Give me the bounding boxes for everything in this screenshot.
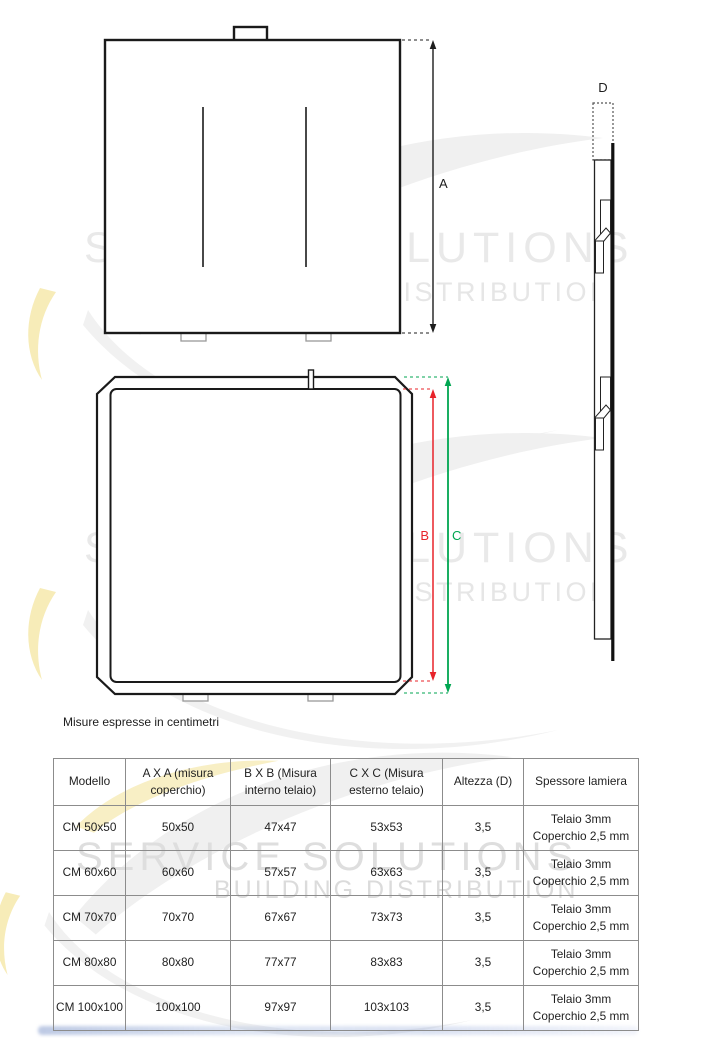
header-cell-cxc: C X C (Misura esterno telaio) <box>331 759 443 806</box>
header-cell-bxb: B X B (Misura interno telaio) <box>231 759 331 806</box>
arrowhead-down <box>430 672 437 681</box>
cover-bottom-tab <box>181 333 206 341</box>
table-cell: 103x103 <box>331 986 443 1031</box>
frame-inner-outline <box>111 389 401 682</box>
table-cell: 60x60 <box>126 851 231 896</box>
table-row: CM 100x100 100x100 97x97 103x103 3,5 Tel… <box>54 986 639 1031</box>
table-row: CM 70x70 70x70 67x67 73x73 3,5 Telaio 3m… <box>54 896 639 941</box>
table-cell: 77x77 <box>231 941 331 986</box>
table-cell: 3,5 <box>443 986 524 1031</box>
table-cell: Telaio 3mm Coperchio 2,5 mm <box>524 851 639 896</box>
cover-bottom-tab <box>306 333 331 341</box>
dimension-b-label: B <box>420 528 429 543</box>
hinge-bracket <box>596 418 604 450</box>
table-cell: CM 100x100 <box>54 986 126 1031</box>
table-cell: 73x73 <box>331 896 443 941</box>
table-row: CM 60x60 60x60 57x57 63x63 3,5 Telaio 3m… <box>54 851 639 896</box>
table-row: CM 80x80 80x80 77x77 83x83 3,5 Telaio 3m… <box>54 941 639 986</box>
table-cell: 47x47 <box>231 806 331 851</box>
header-cell-modello: Modello <box>54 759 126 806</box>
table-cell: 57x57 <box>231 851 331 896</box>
table-cell: 100x100 <box>126 986 231 1031</box>
table-cell: 70x70 <box>126 896 231 941</box>
frame-hinge-pin <box>309 370 314 389</box>
arrowhead-down <box>445 684 452 693</box>
units-note: Misure espresse in centimetri <box>63 715 219 729</box>
hinge-bracket <box>596 241 604 273</box>
table-cell: 83x83 <box>331 941 443 986</box>
dimension-a: A <box>402 40 448 333</box>
table-cell: 3,5 <box>443 851 524 896</box>
table-cell: 3,5 <box>443 941 524 986</box>
dimension-c-label: C <box>452 528 461 543</box>
spec-table: Modello A X A (misura coperchio) B X B (… <box>53 758 639 1031</box>
arrowhead-up <box>430 389 437 398</box>
header-cell-altezza: Altezza (D) <box>443 759 524 806</box>
table-cell: 50x50 <box>126 806 231 851</box>
profile-dashed-extension <box>593 103 613 160</box>
table-cell: 3,5 <box>443 806 524 851</box>
arrowhead-up <box>445 377 452 386</box>
table-cell: CM 60x60 <box>54 851 126 896</box>
table-cell: 80x80 <box>126 941 231 986</box>
arrowhead-up <box>430 40 437 49</box>
cover-top-view <box>105 27 400 341</box>
dimension-a-label: A <box>439 176 448 191</box>
table-cell: Telaio 3mm Coperchio 2,5 mm <box>524 896 639 941</box>
technical-drawings: A B C D <box>0 0 720 740</box>
table-cell: CM 50x50 <box>54 806 126 851</box>
table-cell: Telaio 3mm Coperchio 2,5 mm <box>524 986 639 1031</box>
table-cell: 53x53 <box>331 806 443 851</box>
arrowhead-down <box>430 324 437 333</box>
cover-outline <box>105 40 400 333</box>
table-cell: 3,5 <box>443 896 524 941</box>
table-cell: 67x67 <box>231 896 331 941</box>
table-cell: 97x97 <box>231 986 331 1031</box>
table-header-row: Modello A X A (misura coperchio) B X B (… <box>54 759 639 806</box>
table-cell: 63x63 <box>331 851 443 896</box>
frame-view <box>97 370 412 701</box>
table-cell: Telaio 3mm Coperchio 2,5 mm <box>524 806 639 851</box>
header-cell-axa: A X A (misura coperchio) <box>126 759 231 806</box>
table-cell: CM 70x70 <box>54 896 126 941</box>
side-profile-view: D <box>593 80 613 661</box>
table-cell: CM 80x80 <box>54 941 126 986</box>
dimension-d-label: D <box>598 80 607 95</box>
header-cell-spessore: Spessore lamiera <box>524 759 639 806</box>
table-cell: Telaio 3mm Coperchio 2,5 mm <box>524 941 639 986</box>
table-row: CM 50x50 50x50 47x47 53x53 3,5 Telaio 3m… <box>54 806 639 851</box>
